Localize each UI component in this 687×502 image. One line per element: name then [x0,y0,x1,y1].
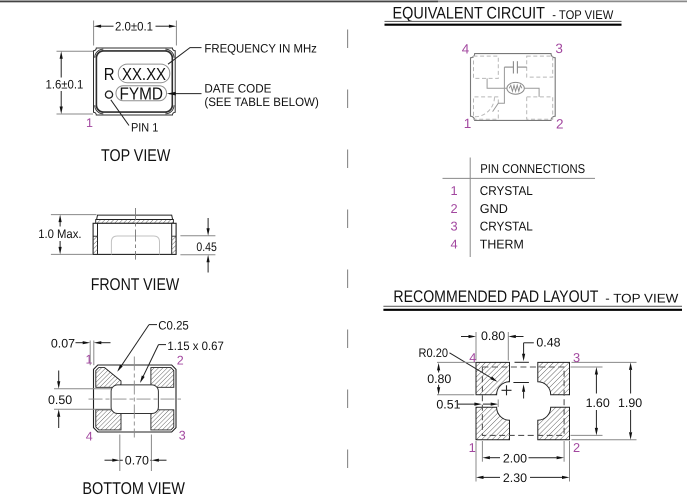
svg-text:1: 1 [86,116,93,130]
svg-text:4: 4 [462,41,470,56]
svg-text:1: 1 [451,183,458,198]
svg-text:BOTTOM VIEW: BOTTOM VIEW [82,479,184,498]
svg-text:CRYSTAL: CRYSTAL [480,219,533,234]
svg-text:RECOMMENDED PAD LAYOUT: RECOMMENDED PAD LAYOUT [393,287,598,306]
svg-text:- TOP VIEW: - TOP VIEW [552,8,613,22]
svg-text:0.07: 0.07 [51,337,75,351]
svg-text:FREQUENCY IN MHz: FREQUENCY IN MHz [204,42,317,56]
svg-text:1.15 x 0.67: 1.15 x 0.67 [167,339,224,353]
svg-text:FRONT VIEW: FRONT VIEW [91,275,180,294]
svg-text:DATE CODE: DATE CODE [204,82,271,96]
svg-text:C0.25: C0.25 [158,318,189,332]
svg-text:1.90: 1.90 [618,396,642,410]
svg-text:GND: GND [480,201,508,216]
svg-text:R: R [104,64,115,84]
svg-text:(SEE TABLE BELOW): (SEE TABLE BELOW) [204,95,318,109]
svg-text:3: 3 [179,429,186,443]
svg-text:CRYSTAL: CRYSTAL [480,183,533,198]
svg-text:1.6±0.1: 1.6±0.1 [46,77,84,91]
svg-text:0.48: 0.48 [536,336,560,350]
svg-text:1: 1 [464,116,472,131]
svg-text:2: 2 [451,201,458,216]
svg-text:4: 4 [451,236,458,251]
svg-text:2.30: 2.30 [503,471,527,485]
svg-text:3: 3 [555,41,563,56]
svg-text:3: 3 [451,219,458,234]
svg-text:0.70: 0.70 [125,454,149,468]
svg-text:4: 4 [86,430,93,444]
svg-text:0.50: 0.50 [48,393,72,407]
svg-text:0.45: 0.45 [196,240,216,254]
svg-text:1: 1 [469,440,476,455]
svg-text:PIN CONNECTIONS: PIN CONNECTIONS [480,161,585,176]
svg-text:4: 4 [469,350,476,365]
svg-text:THERM: THERM [480,236,524,251]
svg-text:XX.XX: XX.XX [122,64,166,84]
svg-text:3: 3 [573,350,580,365]
svg-text:2: 2 [556,117,564,132]
svg-text:0.80: 0.80 [427,372,451,386]
svg-text:0.80: 0.80 [481,329,505,343]
svg-text:2: 2 [573,440,580,455]
svg-text:2: 2 [177,354,184,368]
svg-text:PIN 1: PIN 1 [131,120,158,134]
svg-text:2.0±0.1: 2.0±0.1 [115,20,153,34]
svg-text:1: 1 [86,353,93,367]
svg-text:0.51: 0.51 [436,397,460,411]
svg-text:EQUIVALENT CIRCUIT: EQUIVALENT CIRCUIT [393,4,546,23]
svg-text:1.60: 1.60 [586,396,610,410]
svg-text:2.00: 2.00 [503,451,527,465]
svg-text:R0.20: R0.20 [419,346,449,360]
svg-text:TOP VIEW: TOP VIEW [101,146,170,165]
svg-text:- TOP VIEW: - TOP VIEW [605,292,678,306]
svg-text:1.0 Max.: 1.0 Max. [38,227,81,241]
